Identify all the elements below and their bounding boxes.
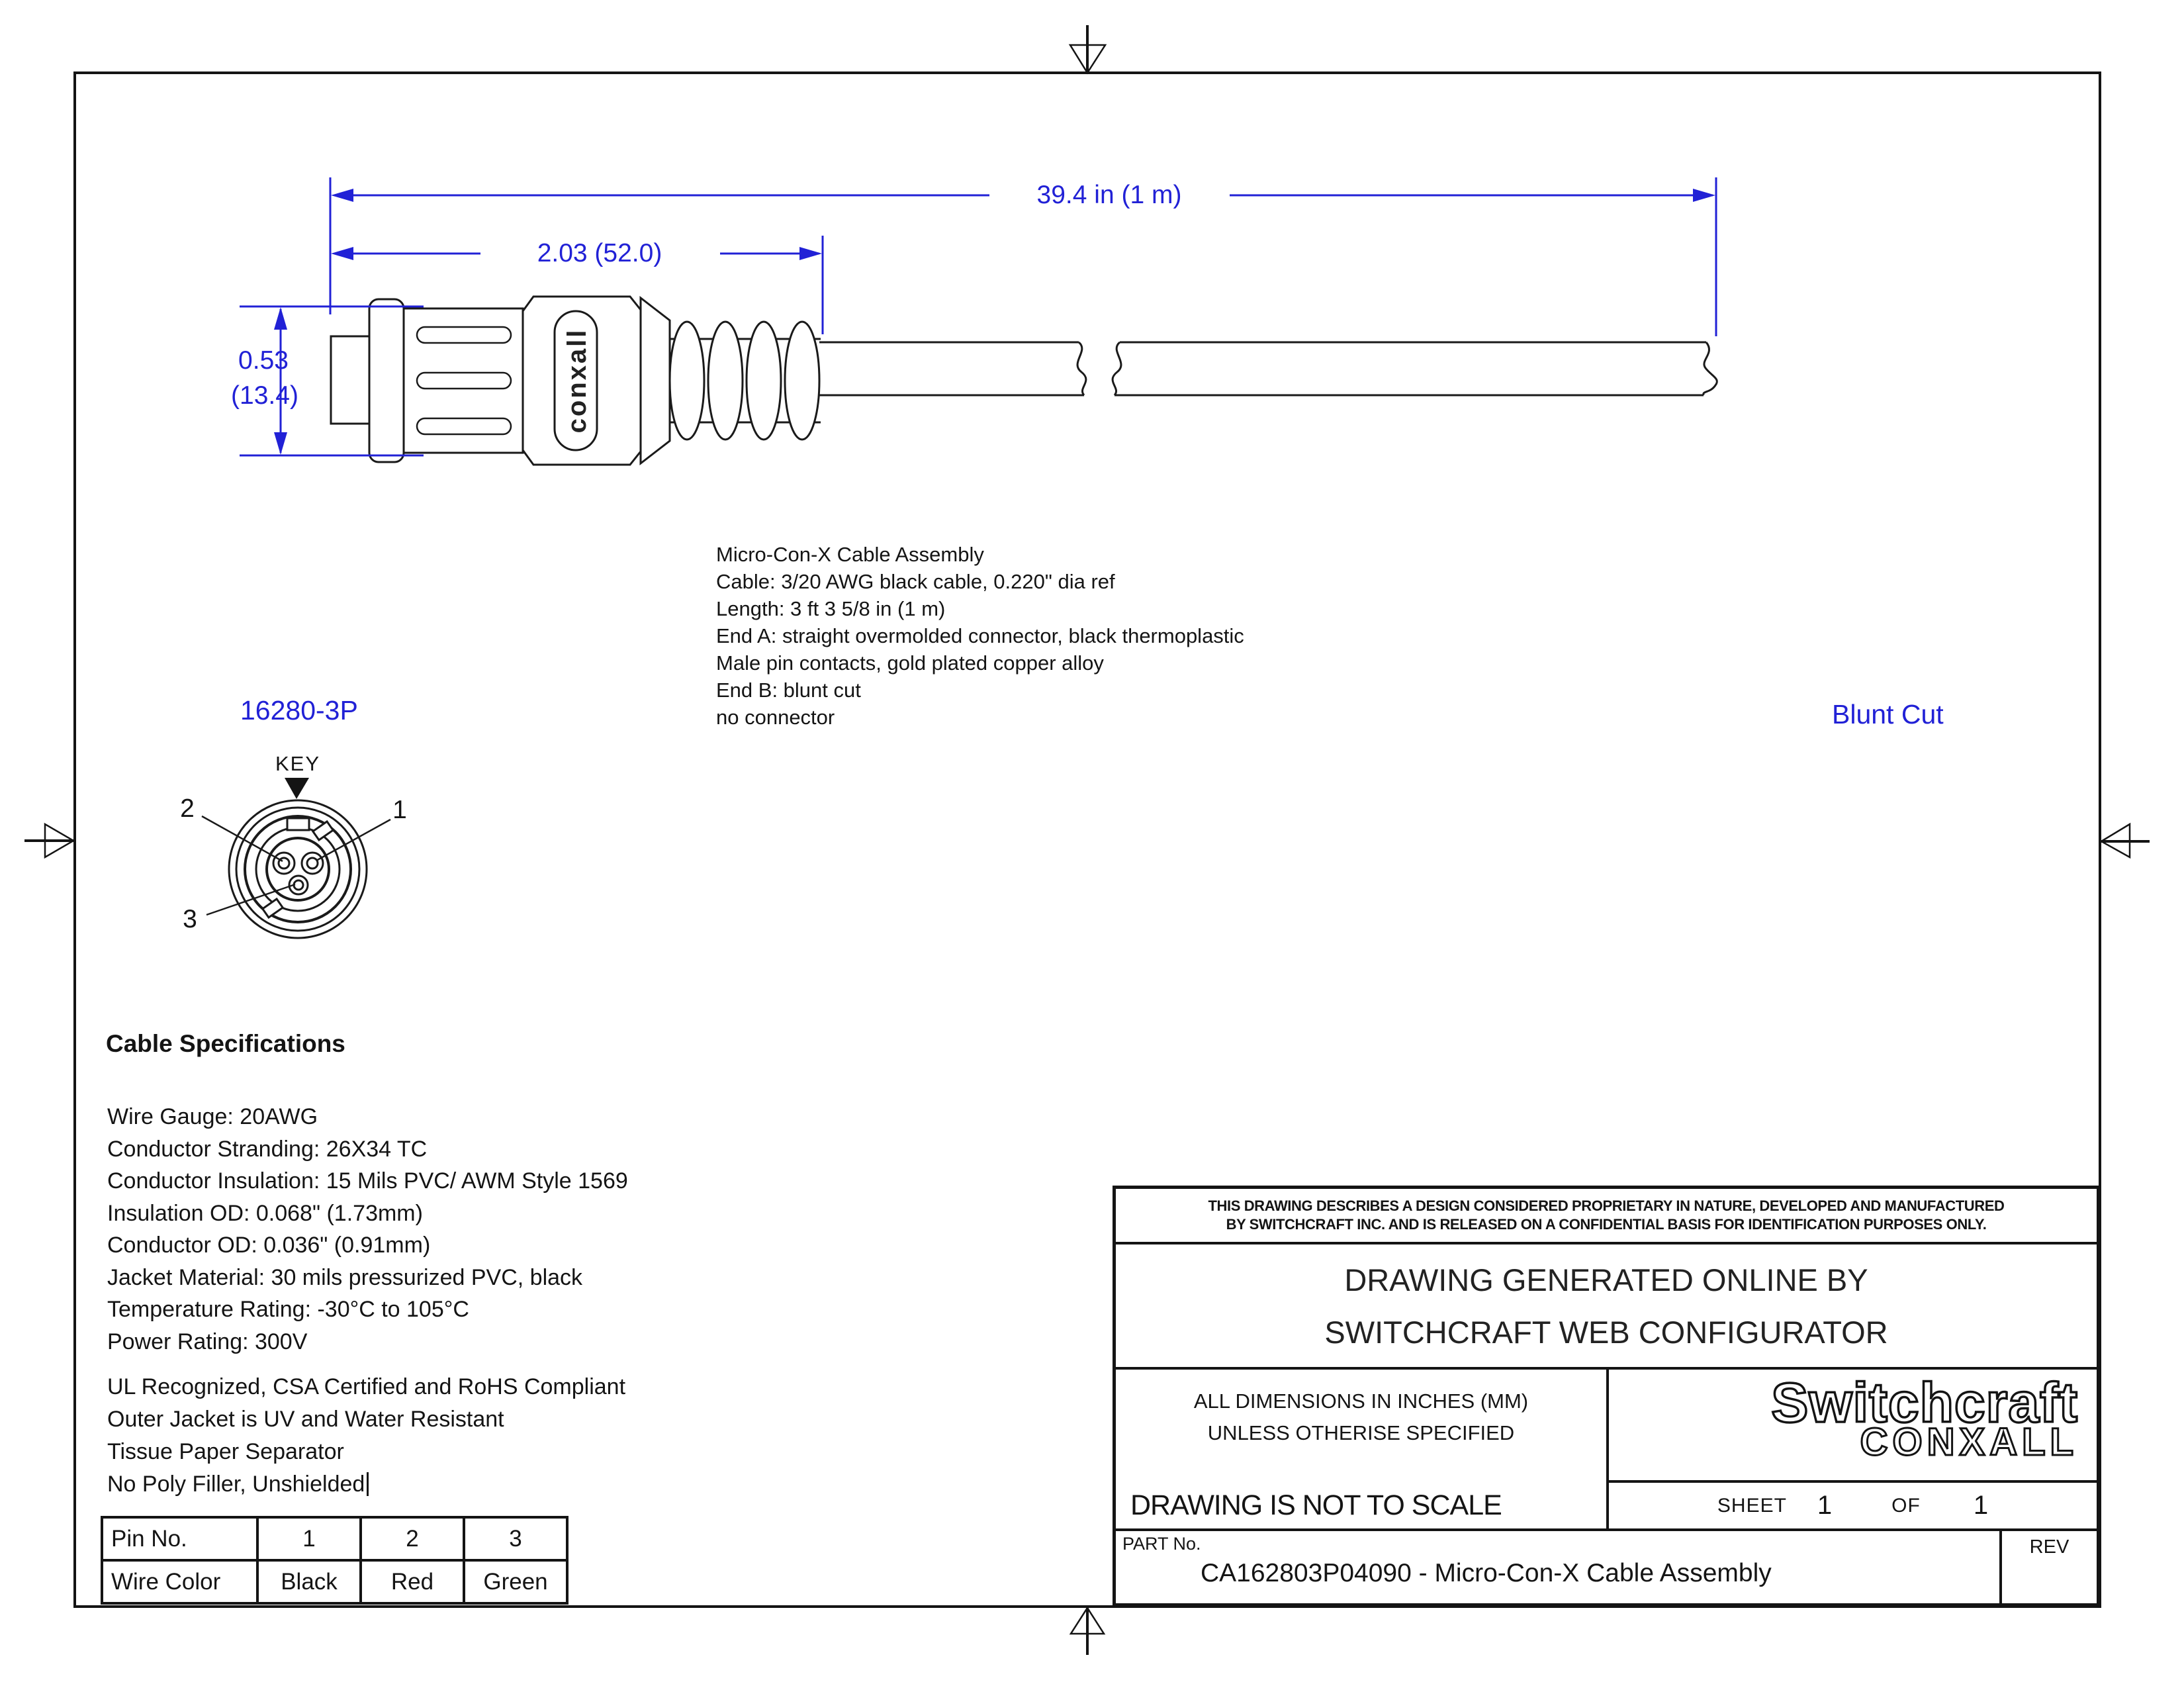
key-label: KEY: [275, 752, 320, 776]
pin-wire-table: Pin No. 1 2 3 Wire Color Black Red Green: [101, 1516, 569, 1605]
wire-color-2: Red: [361, 1560, 464, 1603]
part-number-cell: PART No. CA162803P04090 - Micro-Con-X Ca…: [1116, 1531, 1999, 1603]
pin-2-label: 2: [180, 794, 195, 823]
sheet-info: SHEET 1 OF 1: [1609, 1483, 2097, 1528]
center-mark-top-icon: [1070, 25, 1105, 74]
part-number-value: CA162803P04090 - Micro-Con-X Cable Assem…: [1201, 1559, 1772, 1588]
spec-line: Wire Gauge: 20AWG: [107, 1101, 628, 1133]
part-no-label: PART No.: [1122, 1534, 1201, 1554]
pin-no-header: Pin No.: [102, 1517, 257, 1560]
pin-3-label: 3: [183, 905, 197, 934]
cable-break-right: [1113, 342, 1121, 395]
description-line: no connector: [716, 704, 1244, 731]
proprietary-line: BY SWITCHCRAFT INC. AND IS RELEASED ON A…: [1116, 1215, 2097, 1234]
dim-diameter-mm-text: (13.4): [231, 381, 298, 410]
dims-note-line: UNLESS OTHERISE SPECIFIED: [1116, 1417, 1606, 1449]
center-mark-right-icon: [2100, 824, 2150, 857]
rev-label: REV: [2030, 1536, 2070, 1558]
pin-contacts: [273, 853, 323, 894]
strain-relief: [670, 322, 821, 440]
logo-sheet-cell: Switchcraft CONXALL SHEET 1 OF 1: [1609, 1370, 2097, 1528]
spec-line: Power Rating: 300V: [107, 1326, 628, 1358]
company-logo: Switchcraft CONXALL: [1609, 1370, 2097, 1483]
key-notch: [287, 818, 309, 830]
spec-line: Insulation OD: 0.068" (1.73mm): [107, 1197, 628, 1230]
pin-col-1: 1: [257, 1517, 361, 1560]
cable: [819, 342, 1717, 395]
spec-line: Temperature Rating: -30°C to 105°C: [107, 1293, 628, 1326]
wire-color-1: Black: [257, 1560, 361, 1603]
sheet-number: 1: [1817, 1491, 1832, 1521]
dims-note: ALL DIMENSIONS IN INCHES (MM) UNLESS OTH…: [1116, 1385, 1606, 1449]
spec-line: Jacket Material: 30 mils pressurized PVC…: [107, 1262, 628, 1294]
description-line: End B: blunt cut: [716, 677, 1244, 704]
not-to-scale-note: DRAWING IS NOT TO SCALE: [1130, 1489, 1502, 1522]
description-line: Length: 3 ft 3 5/8 in (1 m): [716, 595, 1244, 622]
key-arrow-icon: [285, 778, 309, 799]
table-row: Wire Color Black Red Green: [102, 1560, 567, 1603]
dimension-notes-cell: ALL DIMENSIONS IN INCHES (MM) UNLESS OTH…: [1116, 1370, 1609, 1528]
generated-line: SWITCHCRAFT WEB CONFIGURATOR: [1116, 1314, 2097, 1350]
dim-connector-text: 2.03 (52.0): [537, 239, 662, 268]
generated-line: DRAWING GENERATED ONLINE BY: [1116, 1262, 2097, 1298]
end-b-label: Blunt Cut: [1832, 699, 1944, 730]
title-block: THIS DRAWING DESCRIBES A DESIGN CONSIDER…: [1113, 1186, 2100, 1607]
center-mark-left-icon: [24, 824, 75, 857]
dim-diameter-in-text: 0.53: [238, 346, 289, 375]
sheet-total: 1: [1974, 1491, 1988, 1521]
dim-overall-text: 39.4 in (1 m): [1037, 181, 1182, 210]
description-line: End A: straight overmolded connector, bl…: [716, 622, 1244, 649]
rev-cell: REV: [1999, 1531, 2097, 1603]
proprietary-notice: THIS DRAWING DESCRIBES A DESIGN CONSIDER…: [1116, 1189, 2097, 1244]
compliance-line-text: No Poly Filler, Unshielded: [107, 1472, 365, 1497]
wire-color-header: Wire Color: [102, 1560, 257, 1603]
text-cursor: [367, 1472, 369, 1496]
assembly-description: Micro-Con-X Cable Assembly Cable: 3/20 A…: [716, 541, 1244, 731]
description-line: Micro-Con-X Cable Assembly: [716, 541, 1244, 568]
generated-by-notice: DRAWING GENERATED ONLINE BY SWITCHCRAFT …: [1116, 1244, 2097, 1370]
pin-1-label: 1: [392, 796, 407, 825]
title-block-middle: ALL DIMENSIONS IN INCHES (MM) UNLESS OTH…: [1116, 1370, 2097, 1531]
spec-line: Conductor Insulation: 15 Mils PVC/ AWM S…: [107, 1165, 628, 1197]
compliance-line: UL Recognized, CSA Certified and RoHS Co…: [107, 1371, 625, 1403]
proprietary-line: THIS DRAWING DESCRIBES A DESIGN CONSIDER…: [1116, 1197, 2097, 1215]
pin-face-diagram: [202, 778, 390, 938]
connector-brand-text: conxall: [563, 328, 592, 434]
pin-col-3: 3: [464, 1517, 567, 1560]
dims-note-line: ALL DIMENSIONS IN INCHES (MM): [1116, 1385, 1606, 1417]
table-row: Pin No. 1 2 3: [102, 1517, 567, 1560]
pin-col-2: 2: [361, 1517, 464, 1560]
compliance-line: Tissue Paper Separator: [107, 1436, 625, 1468]
cable-break-left: [1077, 342, 1086, 395]
drawing-sheet: conxall: [0, 0, 2184, 1688]
compliance-line: No Poly Filler, Unshielded: [107, 1468, 625, 1501]
cable-blunt-end: [1704, 342, 1717, 395]
spec-line: Conductor OD: 0.036" (0.91mm): [107, 1229, 628, 1262]
cable-specs-title: Cable Specifications: [106, 1030, 345, 1058]
wire-color-3: Green: [464, 1560, 567, 1603]
center-mark-bottom-icon: [1071, 1607, 1104, 1655]
sheet-label: SHEET: [1717, 1495, 1787, 1517]
of-label: OF: [1891, 1495, 1921, 1517]
part-number-band: PART No. CA162803P04090 - Micro-Con-X Ca…: [1116, 1531, 2097, 1603]
connector-flange: [369, 299, 404, 462]
description-line: Cable: 3/20 AWG black cable, 0.220" dia …: [716, 568, 1244, 595]
compliance-notes: UL Recognized, CSA Certified and RoHS Co…: [107, 1371, 625, 1501]
connector-tip: [331, 336, 371, 424]
compliance-line: Outer Jacket is UV and Water Resistant: [107, 1403, 625, 1436]
spec-line: Conductor Stranding: 26X34 TC: [107, 1133, 628, 1166]
description-line: Male pin contacts, gold plated copper al…: [716, 649, 1244, 677]
cable-specs-list: Wire Gauge: 20AWG Conductor Stranding: 2…: [107, 1101, 628, 1358]
end-a-part-number: 16280-3P: [240, 695, 358, 726]
